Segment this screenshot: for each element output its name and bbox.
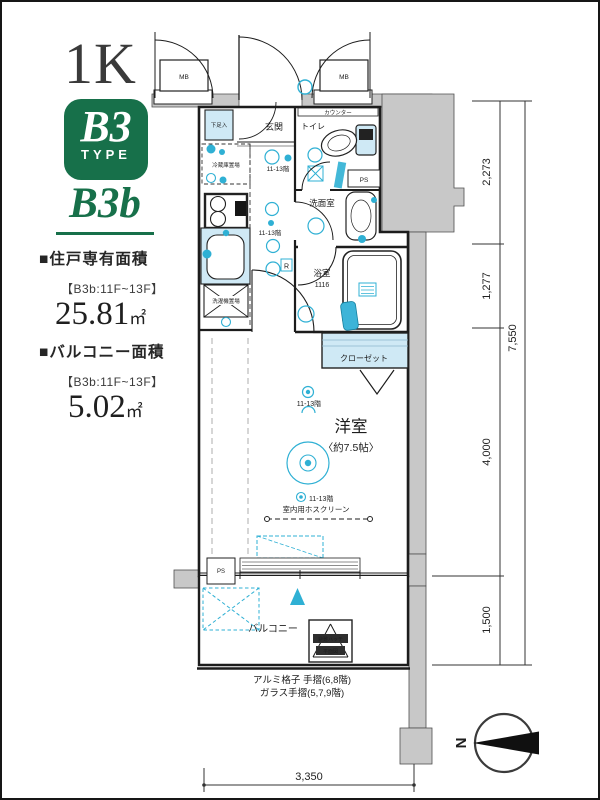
floors-note-2: 11-13階 — [259, 228, 282, 237]
hoscreen-label: 室内用ホスクリーン — [282, 504, 349, 514]
outlet-icon — [220, 177, 227, 184]
refrigerator-label: 冷蔵庫置場 — [212, 161, 240, 169]
meter-box-left-label: MB — [179, 74, 189, 81]
toilet-label: トイレ — [301, 122, 325, 131]
dimension-line-bottom: 3,350 — [202, 764, 416, 792]
shoe-cabinet-label: 下足入 — [211, 122, 228, 129]
faucet-icon — [371, 197, 377, 203]
dim-room: 4,000 — [481, 438, 493, 466]
compass: N — [453, 714, 539, 772]
dim-total-right: 7,550 — [507, 324, 519, 352]
washer-label: 洗濯機置場 — [212, 297, 240, 305]
handrail-notes: アルミ格子 手摺(6,8階) ガラス手摺(5,7,9階) — [253, 674, 351, 699]
dim-middle: 1,277 — [481, 272, 493, 300]
doorbell-icon — [298, 80, 312, 94]
dim-upper: 2,273 — [481, 158, 493, 186]
toilet-counter-label: カウンター — [324, 109, 352, 117]
entrance-label: 玄関 — [265, 121, 283, 132]
faucet-icon — [223, 230, 229, 236]
handrail-note-1: アルミ格子 手摺(6,8階) — [253, 674, 351, 686]
compass-north-label: N — [453, 738, 470, 749]
faucet-icon — [203, 250, 212, 259]
fridge-outlet-label: R — [284, 264, 289, 271]
dim-balcony: 1,500 — [481, 606, 493, 634]
pipe-space-balcony-label: PS — [217, 569, 225, 575]
outlet-icon — [219, 149, 225, 155]
bathroom-label: 浴室 — [313, 268, 331, 278]
pipe-space-top-label: PS — [360, 177, 369, 184]
floorplan-page: 1K B3 TYPE B3b ■住戸専有面積 【B3b:11F~13F】 25.… — [0, 0, 600, 800]
faucet-icon — [358, 235, 366, 243]
washroom-label: 洗面室 — [309, 198, 335, 208]
balcony-label: バルコニー — [248, 623, 298, 635]
meter-box-right-label: MB — [339, 74, 349, 81]
hatch-label-2: 平面図 — [323, 649, 338, 655]
outlet-icon — [207, 145, 216, 154]
main-room-size-label: 〈約7.5帖〉 — [323, 441, 380, 454]
kitchen-sink — [207, 235, 244, 279]
bathroom-size-label: 1116 — [315, 282, 330, 289]
floors-note-4: 11-13階 — [309, 494, 333, 503]
floor-plan-drawing: MB MB 下足入 玄関 — [2, 2, 600, 800]
floors-note-1: 11-13階 — [267, 164, 290, 173]
dim-bottom: 3,350 — [295, 771, 323, 783]
hatch-label-1: 避難ハッチ — [318, 636, 343, 643]
evacuation-hatch: 避難ハッチ 平面図 — [309, 620, 352, 662]
handrail-note-2: ガラス手摺(5,7,9階) — [260, 687, 344, 699]
main-room-label: 洋室 — [335, 417, 368, 436]
closet-label: クローゼット — [340, 353, 388, 363]
